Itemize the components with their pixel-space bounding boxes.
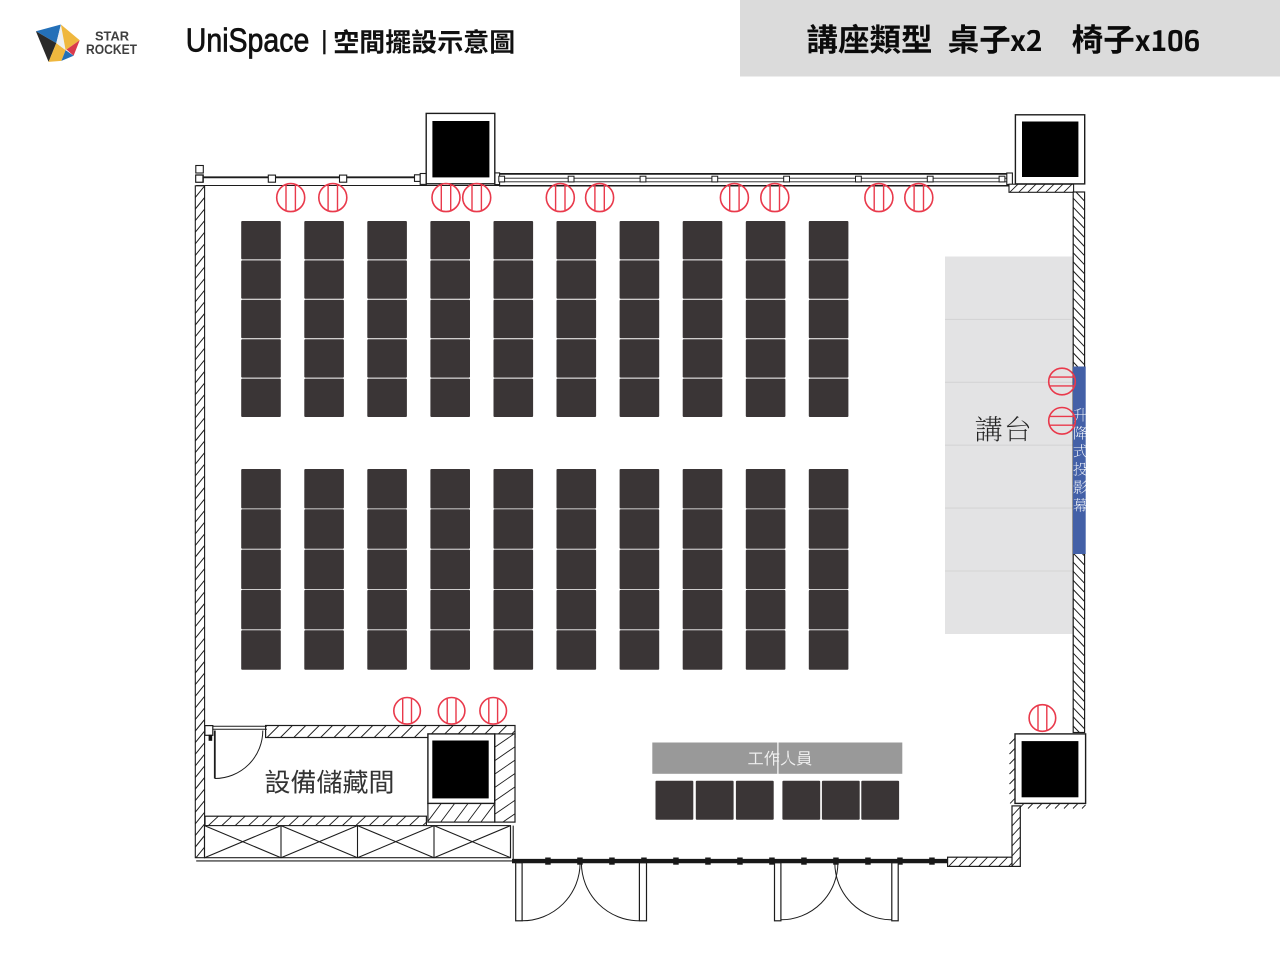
svg-text:ROCKET: ROCKET (86, 42, 138, 57)
svg-text:UniSpace: UniSpace (186, 21, 309, 58)
